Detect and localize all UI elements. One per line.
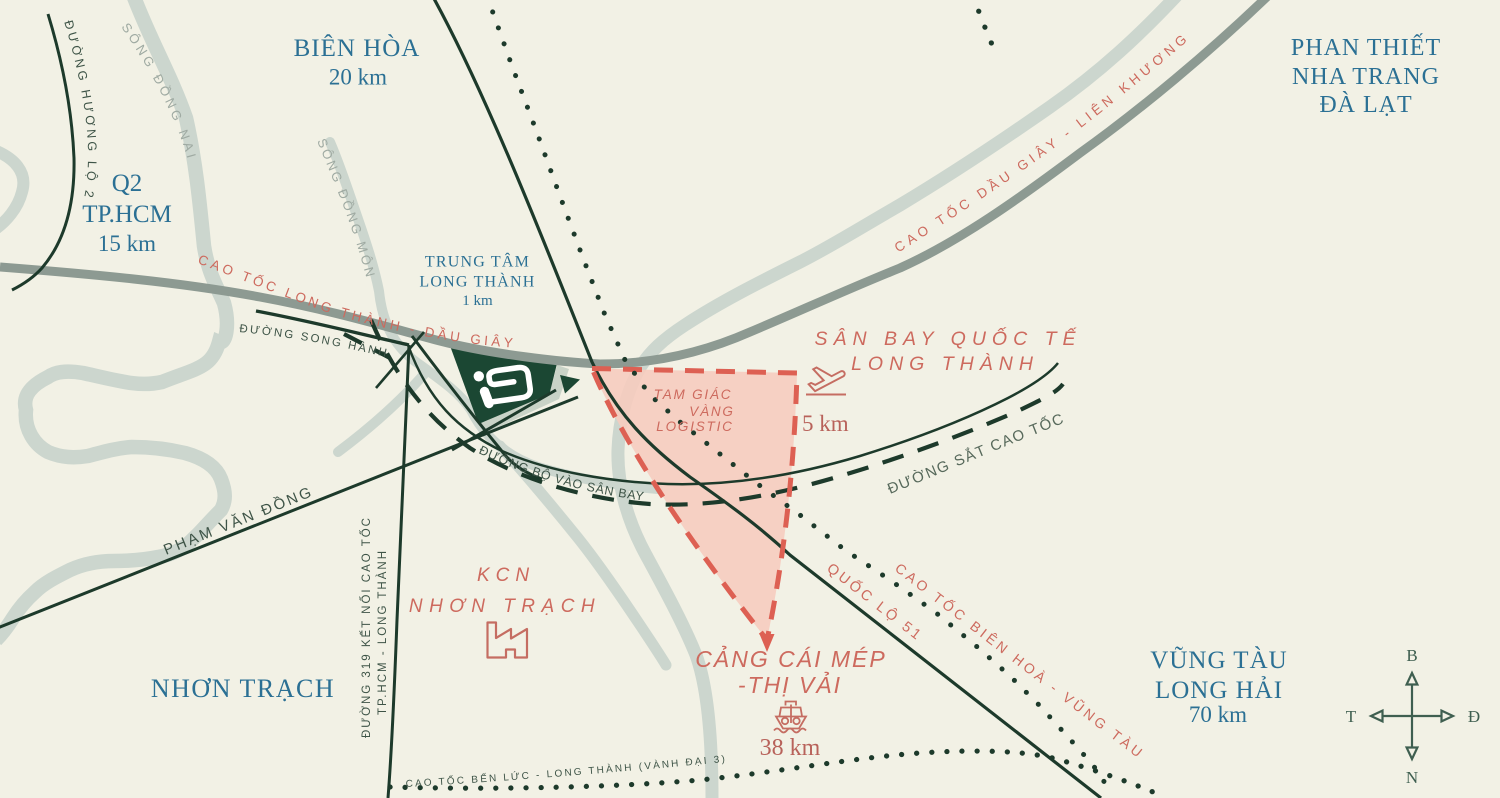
svg-text:15 km: 15 km [98, 231, 156, 256]
svg-text:Q2: Q2 [112, 170, 143, 197]
svg-text:Đ: Đ [1468, 707, 1480, 726]
svg-text:LOGISTIC: LOGISTIC [656, 419, 733, 434]
svg-text:20 km: 20 km [329, 65, 387, 90]
svg-text:NHƠN TRẠCH: NHƠN TRẠCH [409, 596, 601, 617]
svg-text:TP.HCM - LONG THÀNH: TP.HCM - LONG THÀNH [376, 549, 389, 715]
svg-text:NHA TRANG: NHA TRANG [1292, 64, 1440, 90]
svg-text:NHƠN TRẠCH: NHƠN TRẠCH [151, 674, 335, 703]
svg-text:38 km: 38 km [760, 735, 821, 761]
svg-text:LONG THÀNH: LONG THÀNH [851, 352, 1039, 375]
svg-text:LONG HẢI: LONG HẢI [1155, 676, 1283, 704]
svg-text:TRUNG TÂM: TRUNG TÂM [425, 252, 530, 271]
svg-text:N: N [1406, 768, 1418, 787]
svg-text:70 km: 70 km [1189, 702, 1247, 727]
svg-text:-THỊ VẢI: -THỊ VẢI [738, 670, 842, 698]
svg-text:BIÊN HÒA: BIÊN HÒA [294, 34, 421, 62]
svg-text:ĐƯỜNG 319 KẾT NỐI CAO TỐC: ĐƯỜNG 319 KẾT NỐI CAO TỐC [359, 516, 373, 738]
svg-text:KCN: KCN [477, 565, 535, 586]
svg-text:TAM GIÁC: TAM GIÁC [654, 387, 733, 402]
svg-text:T: T [1346, 707, 1357, 726]
svg-text:5 km: 5 km [802, 411, 849, 436]
svg-text:CẢNG CÁI MÉP: CẢNG CÁI MÉP [695, 644, 886, 672]
svg-text:PHAN THIẾT: PHAN THIẾT [1291, 34, 1441, 61]
svg-text:VÀNG: VÀNG [689, 404, 734, 419]
svg-text:VŨNG TÀU: VŨNG TÀU [1150, 646, 1287, 674]
svg-text:LONG THÀNH: LONG THÀNH [419, 272, 535, 291]
svg-text:ĐÀ LẠT: ĐÀ LẠT [1319, 92, 1412, 118]
svg-text:B: B [1406, 646, 1417, 665]
svg-text:TP.HCM: TP.HCM [82, 201, 172, 228]
svg-text:SÂN BAY QUỐC TẾ: SÂN BAY QUỐC TẾ [815, 326, 1082, 350]
svg-text:1 km: 1 km [462, 293, 493, 309]
